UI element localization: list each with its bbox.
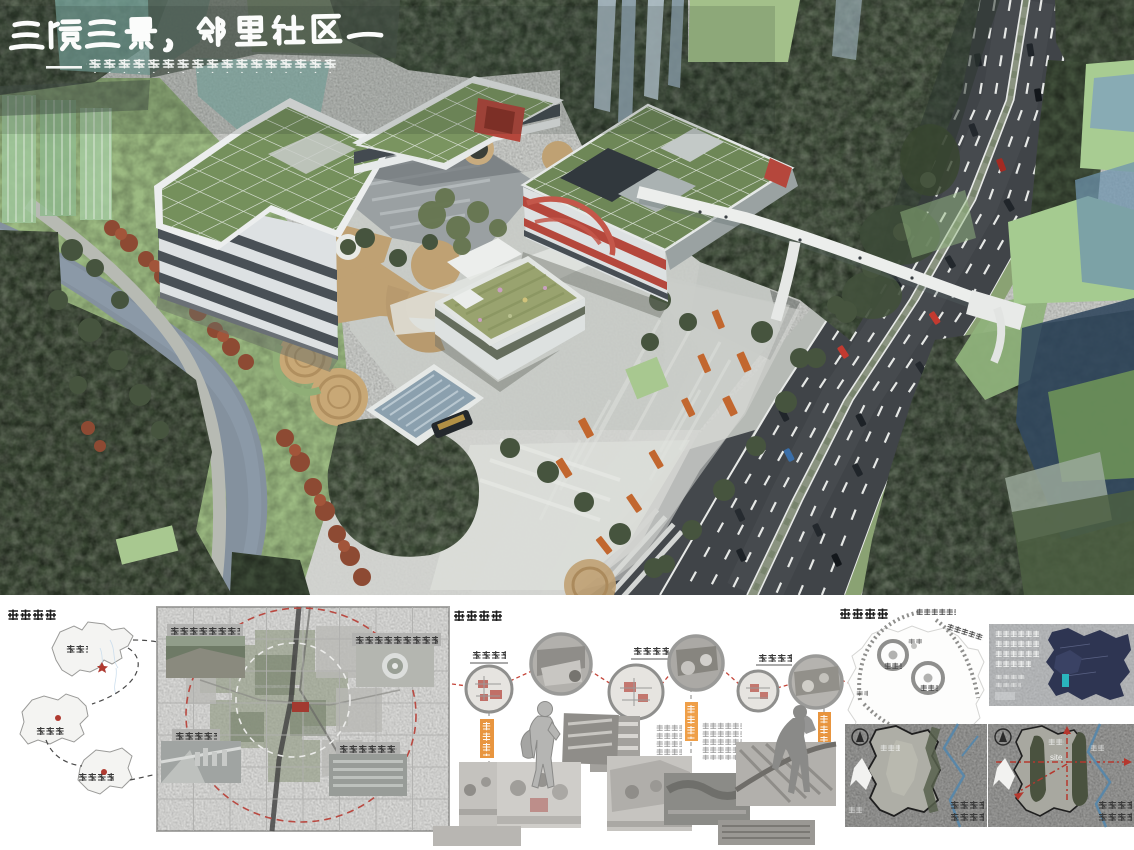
svg-text:site: site xyxy=(1050,753,1063,762)
